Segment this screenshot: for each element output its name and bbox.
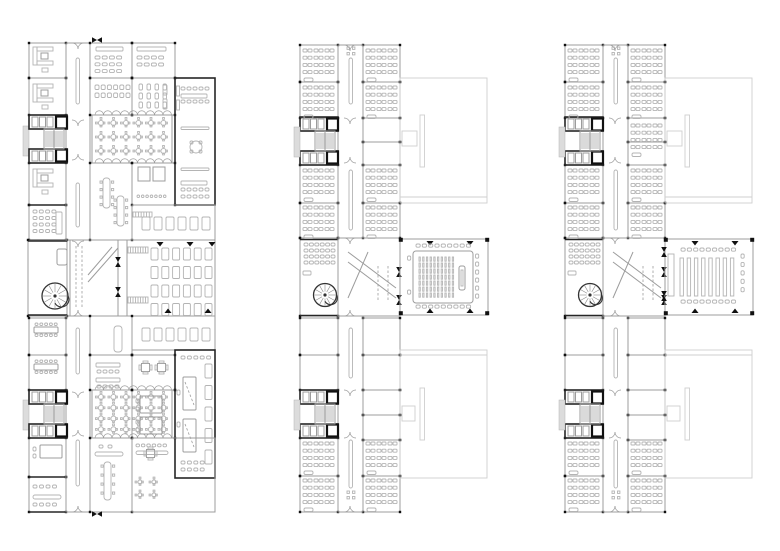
ground-floor-plan-stair-core	[29, 115, 67, 438]
ground-floor-plan-circulation-markers	[42, 37, 216, 517]
ground-floor-plan-structure	[23, 42, 215, 513]
ground-floor-plan	[23, 37, 216, 517]
upper-floor-plan-a-auditorium-block	[399, 238, 489, 315]
upper-floor-plan-b-library-block	[661, 238, 754, 315]
upper-floor-plan-b	[559, 44, 754, 513]
upper-floor-plan-a-shared-structure	[294, 44, 487, 513]
upper-floor-plan-a	[294, 44, 489, 513]
architectural-drawing	[0, 0, 780, 551]
upper-floor-plan-b-extra-classroom	[631, 124, 662, 157]
floor-plans-canvas	[0, 0, 780, 551]
